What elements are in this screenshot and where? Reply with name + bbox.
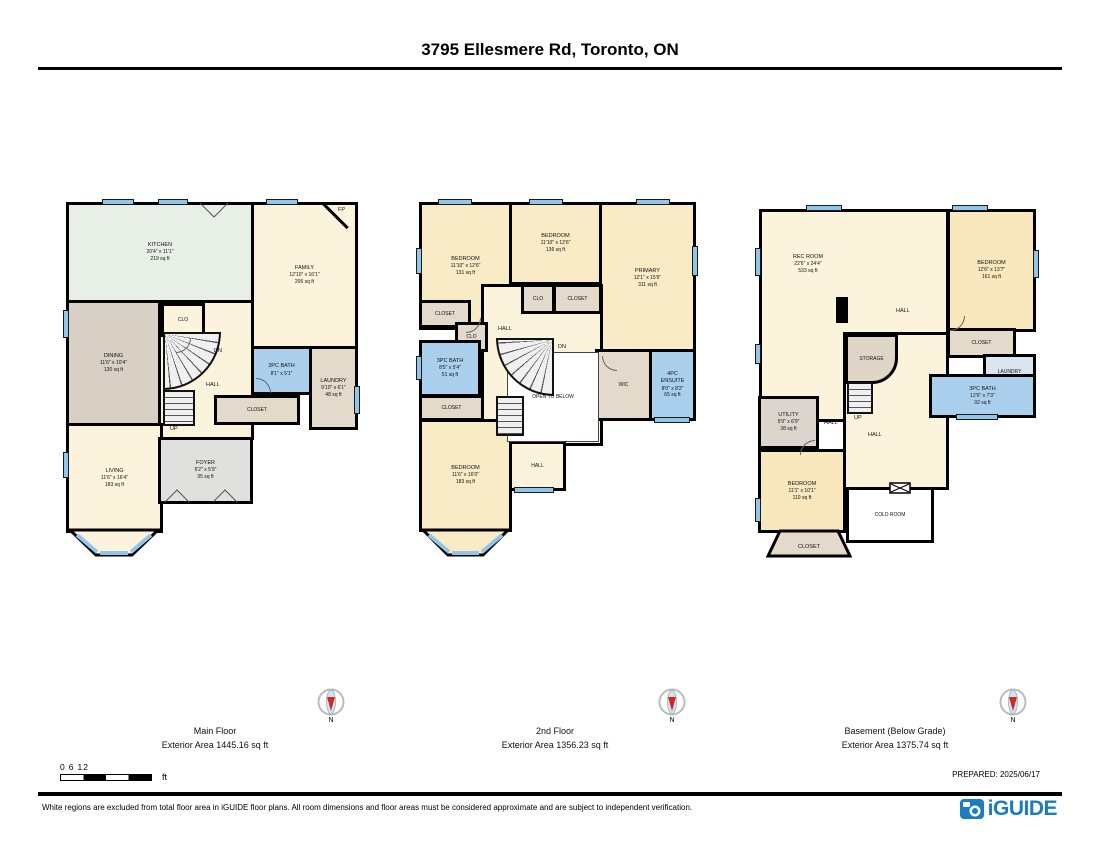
floor-name: 2nd Floor	[405, 725, 705, 739]
room-cold: COLD ROOM	[846, 487, 934, 543]
stairs-basement	[847, 382, 873, 414]
footer-divider	[38, 792, 1062, 796]
room-ensuite: 4PC ENSUITE8'0" x 8'2"65 sq ft	[649, 349, 696, 421]
room-closet-center: CLOSET	[553, 284, 602, 314]
floor-area: Exterior Area 1375.74 sq ft	[745, 739, 1045, 753]
up-label-main: UP	[170, 426, 178, 432]
hall-label-basement2: HALL	[824, 420, 838, 426]
window	[654, 417, 690, 423]
window	[956, 414, 998, 420]
door-swing	[164, 489, 190, 503]
window	[755, 498, 761, 522]
room-bedroom-basement: BEDROOM11'1" x 10'1"110 sq ft	[758, 449, 846, 533]
window	[438, 199, 472, 205]
room-bedroom-right: BEDROOM12'6" x 13'7"161 sq ft	[947, 209, 1036, 332]
bay-window-bedroom3	[417, 527, 514, 559]
prepared-date: PREPARED: 2025/06/17	[952, 770, 1040, 779]
scale-unit: ft	[162, 772, 167, 782]
iguide-logo: iGUIDE	[959, 797, 1057, 821]
window	[63, 310, 69, 338]
hall-label-main: HALL	[206, 382, 220, 388]
compass-icon: N	[658, 688, 686, 729]
window	[266, 199, 298, 205]
bay-window-living	[64, 527, 164, 559]
window	[755, 344, 761, 364]
door-swing	[199, 202, 229, 218]
room-primary: PRIMARY12'1" x 15'6"311 sq ft	[599, 202, 696, 355]
room-laundry-main: LAUNDRY9'10" x 6'1"48 sq ft	[309, 346, 358, 430]
room-bedroom2: BEDROOM11'10" x 12'6"136 sq ft	[509, 202, 602, 285]
room-clo-center: CLO	[521, 284, 555, 314]
window	[514, 487, 554, 493]
window	[416, 356, 422, 380]
room-hall-second-lower: HALL	[509, 441, 566, 491]
svg-text:N: N	[1010, 717, 1015, 724]
iguide-logo-text: iGUIDE	[988, 797, 1057, 821]
footer-disclaimer: White regions are excluded from total fl…	[42, 803, 692, 812]
window	[102, 199, 134, 205]
compass-icon: N	[999, 688, 1027, 729]
floor-label-second: 2nd Floor Exterior Area 1356.23 sq ft	[405, 725, 705, 752]
floor-name: Main Floor	[65, 725, 365, 739]
scale-ticks: 0612	[60, 762, 92, 772]
floor-area: Exterior Area 1356.23 sq ft	[405, 739, 705, 753]
room-bath-second: 3PC BATH8'5" x 5'4"51 sq ft	[419, 340, 481, 397]
room-storage: STORAGE	[845, 334, 898, 384]
window	[692, 246, 698, 276]
structural-pillar	[836, 297, 848, 323]
window	[529, 199, 563, 205]
header-divider	[38, 67, 1062, 70]
svg-text:N: N	[328, 717, 333, 724]
window	[416, 248, 422, 274]
closet-bay-basement: CLOSET	[766, 529, 852, 559]
room-dining: DINING11'6" x 10'4"130 sq ft	[66, 300, 161, 426]
stairs-straight-second	[496, 396, 524, 436]
iguide-logo-icon	[959, 797, 985, 821]
door-swing	[212, 489, 238, 503]
hall-label-basement: HALL	[896, 308, 910, 314]
fireplace-label: FP	[338, 207, 345, 213]
window	[354, 386, 360, 414]
window	[158, 199, 188, 205]
hall-label-basement3: HALL	[868, 432, 882, 438]
svg-text:N: N	[669, 717, 674, 724]
window	[636, 199, 670, 205]
scale-bar	[60, 774, 152, 781]
stairs-straight-main	[163, 390, 195, 426]
scale-tick: 12	[77, 762, 88, 772]
page-title: 3795 Ellesmere Rd, Toronto, ON	[0, 40, 1100, 60]
room-living: LIVING11'6" x 16'4"183 sq ft	[66, 423, 163, 533]
room-bath-basement: 3PC BATH12'6" x 7'3"92 sq ft	[929, 374, 1036, 418]
floor-label-main: Main Floor Exterior Area 1445.16 sq ft	[65, 725, 365, 752]
compass-icon: N	[317, 688, 345, 729]
room-closet-main: CLOSET	[214, 395, 300, 425]
window	[1033, 250, 1039, 278]
floor-name: Basement (Below Grade)	[745, 725, 1045, 739]
floor-label-basement: Basement (Below Grade) Exterior Area 137…	[745, 725, 1045, 752]
svg-text:CLOSET: CLOSET	[798, 544, 821, 550]
window	[755, 248, 761, 276]
window	[63, 452, 69, 478]
window	[806, 205, 842, 211]
dn-label-second: DN	[558, 344, 566, 350]
floor-area: Exterior Area 1445.16 sq ft	[65, 739, 365, 753]
hall-label-second: HALL	[498, 326, 512, 332]
dn-label-main: DN	[214, 348, 222, 354]
room-closet-left2: CLOSET	[419, 395, 484, 421]
floor-plan-page: 3795 Ellesmere Rd, Toronto, ON KITCHEN20…	[0, 0, 1100, 850]
up-label-basement: UP	[854, 415, 862, 421]
scale-tick: 6	[69, 762, 75, 772]
cold-room-door-icon	[889, 482, 911, 494]
window	[952, 205, 988, 211]
scale-tick: 0	[60, 762, 66, 772]
